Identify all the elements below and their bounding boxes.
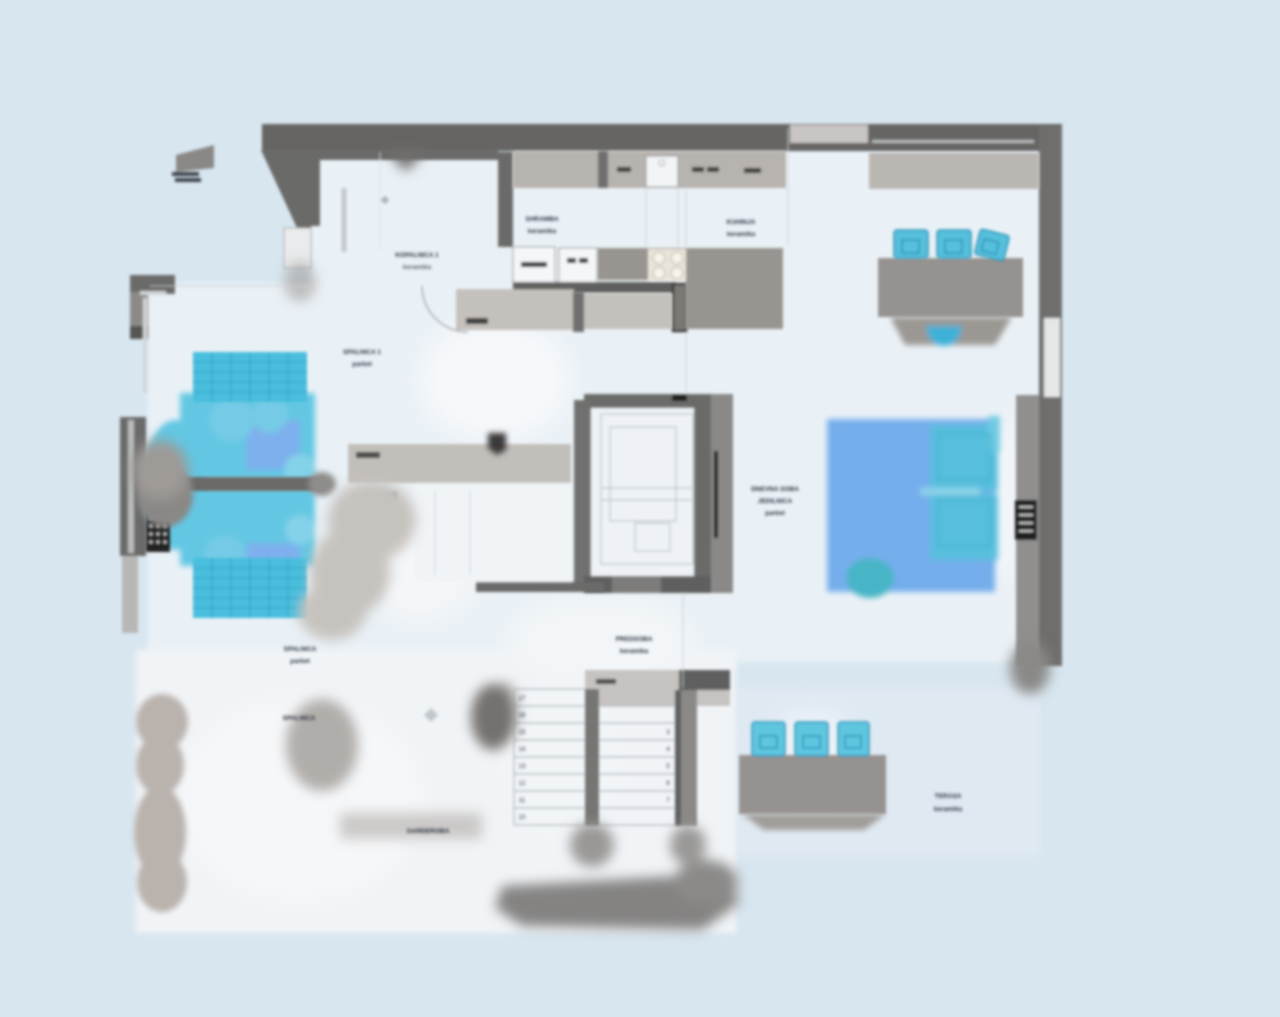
svg-text:SPALNICA: SPALNICA xyxy=(283,715,316,722)
svg-text:keramika: keramika xyxy=(934,806,963,813)
svg-text:SHRAMBA: SHRAMBA xyxy=(525,216,559,223)
svg-text:SPALNICA: SPALNICA xyxy=(284,646,317,653)
svg-text:15: 15 xyxy=(519,730,526,736)
svg-text:KUHINJA: KUHINJA xyxy=(727,219,756,226)
svg-text:12: 12 xyxy=(519,781,526,787)
svg-text:14: 14 xyxy=(519,747,526,753)
svg-text:13: 13 xyxy=(519,764,526,770)
svg-text:DNEVNA SOBA: DNEVNA SOBA xyxy=(751,486,799,493)
svg-text:11: 11 xyxy=(519,798,526,804)
svg-text:SPALNICA 1: SPALNICA 1 xyxy=(343,349,381,356)
svg-text:keramika: keramika xyxy=(620,648,649,655)
svg-text:parket: parket xyxy=(765,510,785,517)
svg-text:16: 16 xyxy=(519,713,526,719)
svg-text:parket: parket xyxy=(352,361,372,368)
svg-text:keramika: keramika xyxy=(727,231,756,238)
svg-text:keramika: keramika xyxy=(528,228,557,235)
svg-text:TERASA: TERASA xyxy=(935,793,962,800)
svg-text:JEDILNICA: JEDILNICA xyxy=(758,498,793,505)
svg-text:10: 10 xyxy=(519,815,526,821)
svg-text:KOPALNICA 1: KOPALNICA 1 xyxy=(395,252,439,259)
svg-text:keramika: keramika xyxy=(403,264,432,271)
svg-text:parket: parket xyxy=(290,658,310,665)
svg-text:GARDEROBA: GARDEROBA xyxy=(407,828,450,835)
svg-text:17: 17 xyxy=(519,696,526,702)
svg-text:PREDSOBA: PREDSOBA xyxy=(616,636,653,643)
